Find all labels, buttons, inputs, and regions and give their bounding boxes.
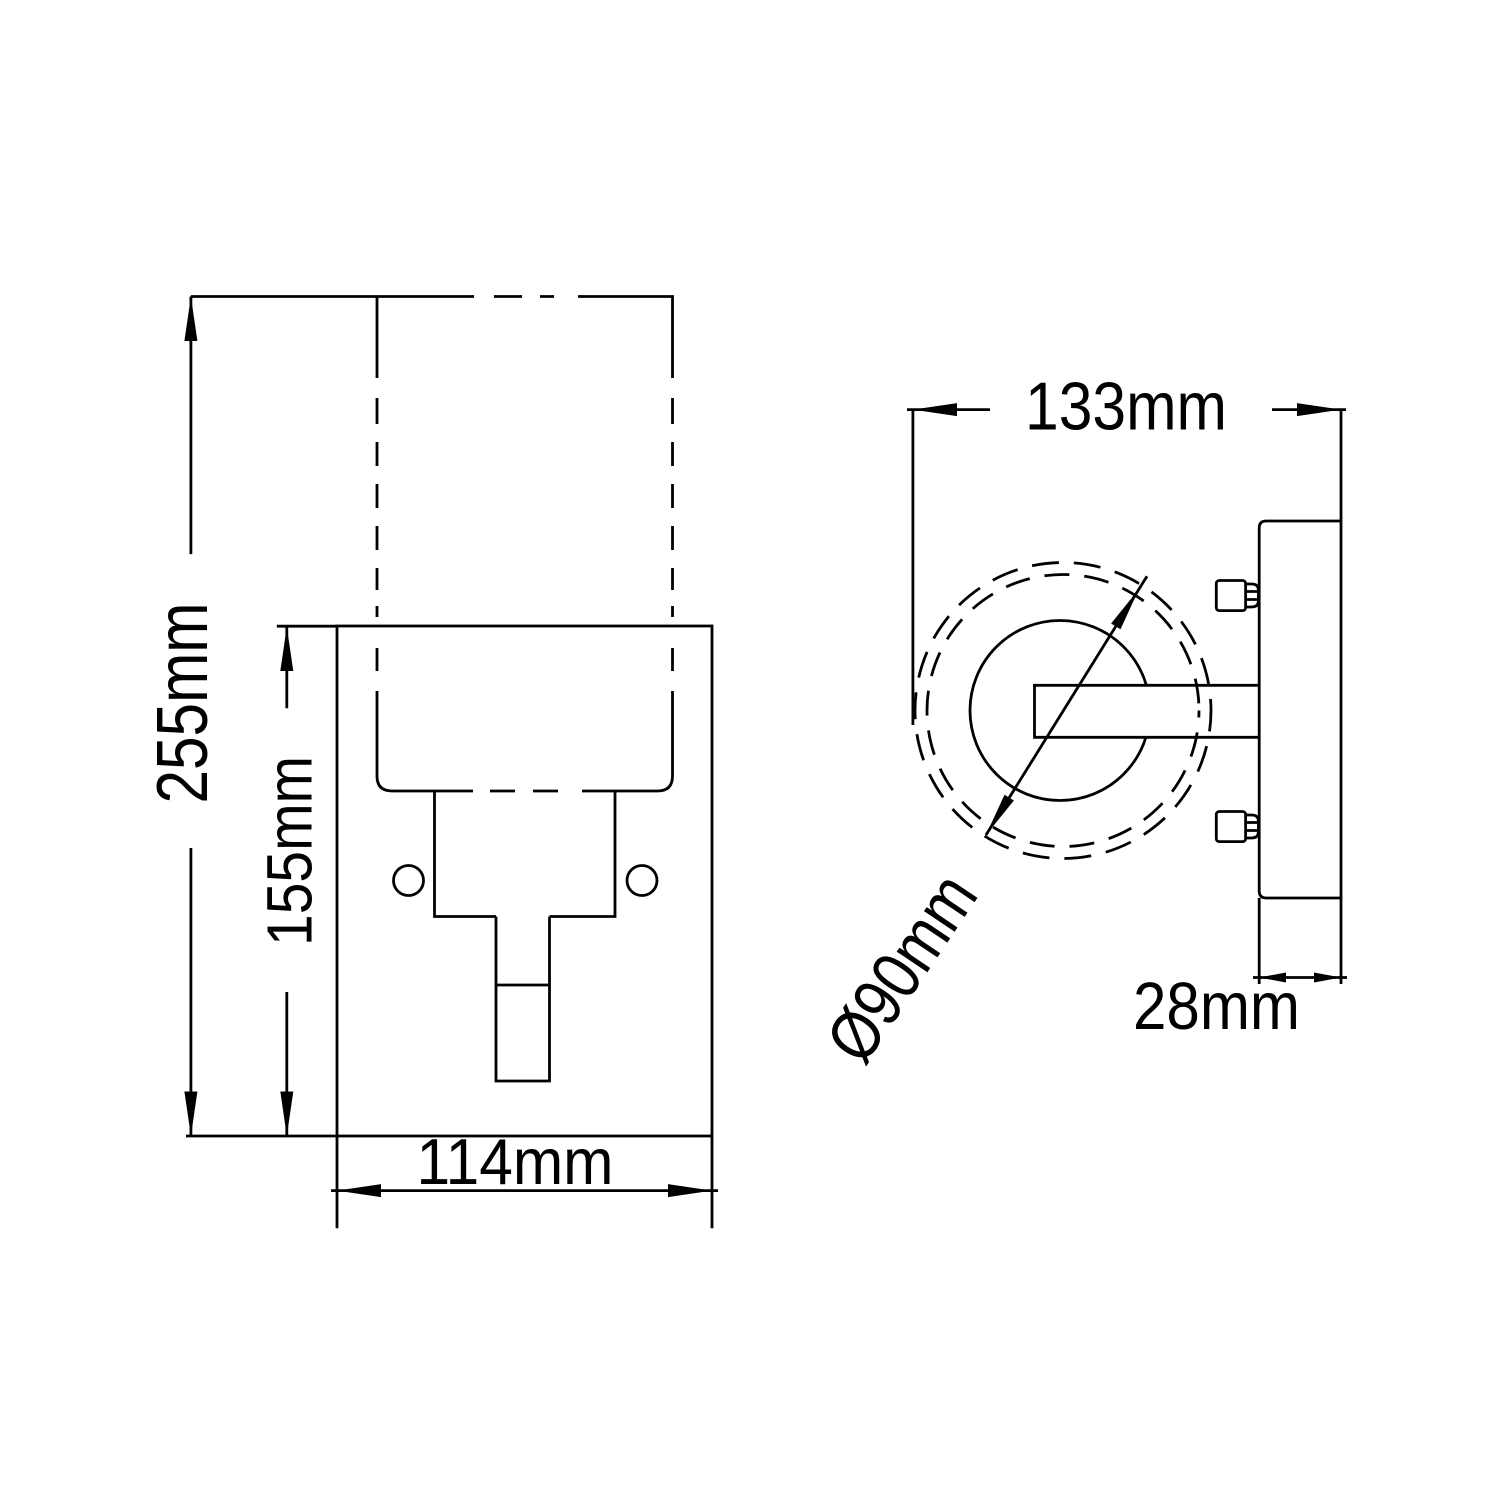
- svg-text:155mm: 155mm: [254, 756, 326, 946]
- svg-text:133mm: 133mm: [1025, 369, 1227, 445]
- svg-text:114mm: 114mm: [417, 1125, 614, 1198]
- svg-text:255mm: 255mm: [143, 603, 223, 804]
- svg-text:28mm: 28mm: [1133, 969, 1300, 1044]
